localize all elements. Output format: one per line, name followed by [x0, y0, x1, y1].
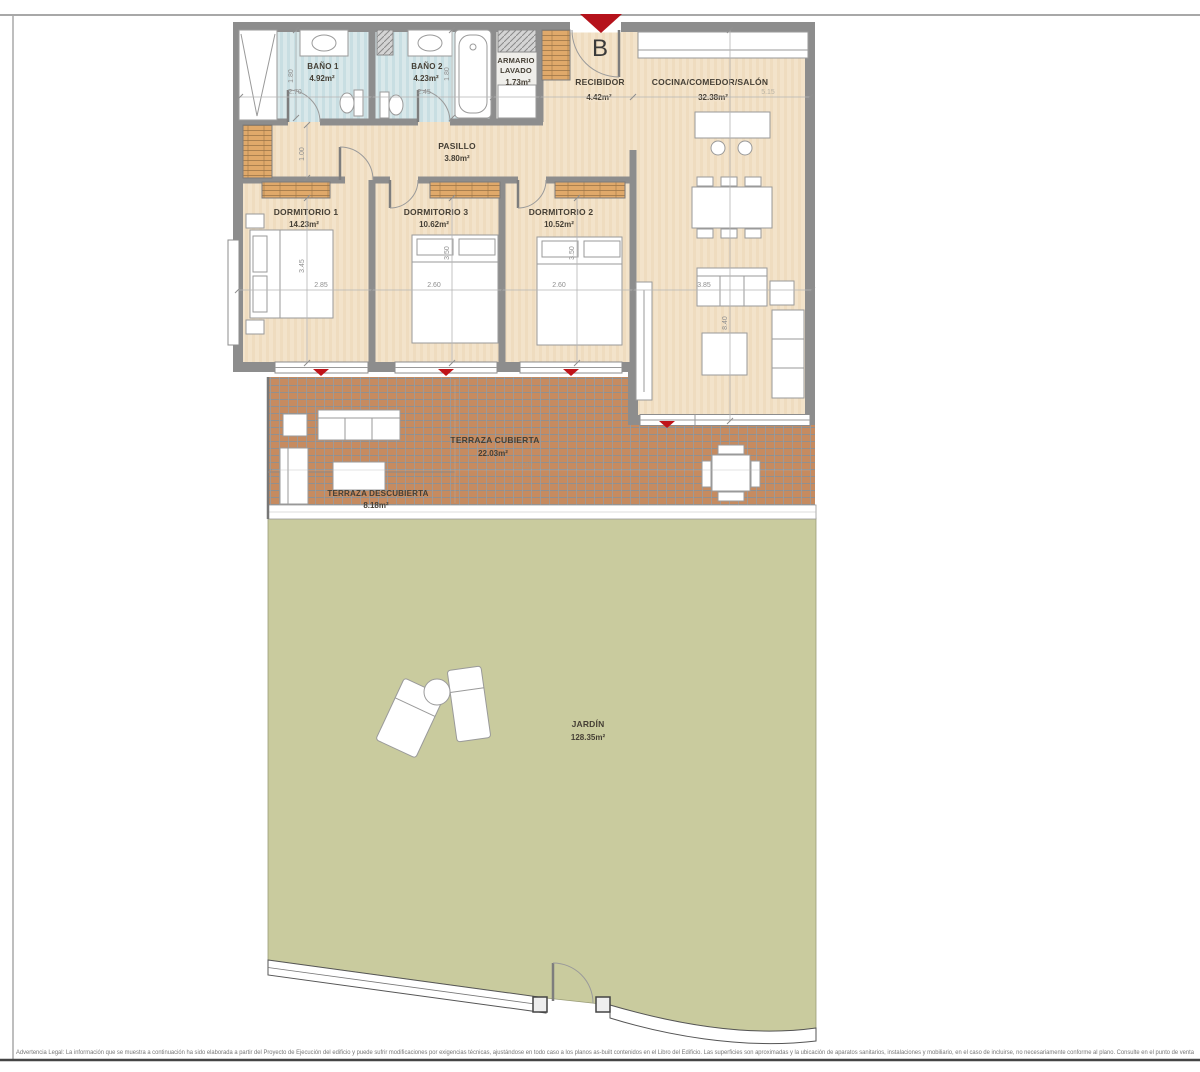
dim-bano1-h: 1.80: [288, 69, 295, 83]
armario-lavado-label-2: LAVADO: [500, 66, 532, 75]
bath1-toilet-bowl: [340, 93, 354, 113]
dorm3-pillow-2: [459, 239, 495, 255]
dorm3-area: 10.62m²: [419, 220, 449, 229]
dim-dorm1-h: 3.45: [299, 259, 306, 273]
bano1-area: 4.92m²: [309, 74, 335, 83]
dim-bano1-w: 2.70: [288, 89, 302, 96]
dining-chair-1: [697, 177, 713, 186]
dorm2-area: 10.52m²: [544, 220, 574, 229]
cocina-area: 32.38m²: [698, 93, 728, 102]
bath2-toilet-tank: [380, 92, 389, 118]
wardrobe-dorm1: [262, 182, 330, 198]
tv-bench: [772, 310, 804, 398]
dining-chair-2: [721, 177, 737, 186]
terrace-chair-bottom: [718, 492, 744, 501]
unit-marker: B: [592, 35, 608, 62]
dim-pasillo: 1.00: [299, 147, 306, 161]
garden: JARDÍN 128.35m²: [268, 518, 816, 1044]
dim-dorm3-w: 2.60: [427, 282, 441, 289]
dorm1-nightstand-bottom: [246, 320, 264, 334]
armario-lavado-area: 1.73m²: [505, 78, 531, 87]
dim-dorm1-w: 2.85: [314, 282, 328, 289]
shower-screen: [239, 30, 277, 120]
dim-bano2-w: 2.45: [417, 89, 431, 96]
bano1-label: BAÑO 1: [307, 62, 339, 71]
pasillo-label: PASILLO: [438, 141, 476, 151]
dining-table: [692, 187, 772, 228]
floor-plan-page: JARDÍN 128.35m² TERRAZA CUBIERTA 22.03m²…: [0, 0, 1200, 1072]
dim-dorm2-h: 3.50: [569, 246, 576, 260]
terrace-chair-top: [718, 445, 744, 454]
dorm2-pillow-2: [584, 241, 620, 257]
dining-chair-4: [697, 229, 713, 238]
armario-lavado-label-1: ARMARIO: [497, 56, 534, 65]
dorm1-area: 14.23m²: [289, 220, 319, 229]
gate-post-right: [596, 997, 610, 1012]
terrace-dining-table: [712, 455, 750, 491]
gate-post-left: [533, 997, 547, 1012]
terraza-cubierta-label: TERRAZA CUBIERTA: [450, 435, 539, 445]
garden-label: JARDÍN: [572, 719, 605, 729]
dim-salon-w: 3.85: [697, 282, 711, 289]
dim-terrace-w: 11.90: [516, 462, 533, 469]
terraza-descubierta-label: TERRAZA DESCUBIERTA: [327, 489, 428, 498]
bath1-basin: [312, 35, 336, 51]
bano2-area: 4.23m²: [413, 74, 439, 83]
terrace-chair-left: [702, 461, 711, 487]
laundry-cabinet: [498, 85, 536, 118]
garden-lawn: [268, 518, 816, 1031]
cocina-label: COCINA/COMEDOR/SALÓN: [652, 76, 768, 87]
dining-chair-6: [745, 229, 761, 238]
dorm1-label: DORMITORIO 1: [274, 207, 339, 217]
coffee-table: [702, 333, 747, 375]
duct-shaft: [377, 30, 393, 55]
dorm1-pillow-1: [253, 236, 267, 272]
dorm1-pillow-2: [253, 276, 267, 312]
washer: [498, 30, 536, 52]
bath2-toilet-bowl: [389, 95, 403, 115]
dorm3-label: DORMITORIO 3: [404, 207, 469, 217]
garden-area: 128.35m²: [571, 733, 606, 742]
dim-salon-h: 8.40: [722, 316, 729, 330]
dim-dorm3-h: 3.50: [444, 246, 451, 260]
bath1-toilet-tank: [354, 90, 363, 116]
island-stool-1: [711, 141, 725, 155]
terrace-sofa: [318, 410, 400, 440]
legal-disclaimer: Advertencia Legal: La información que se…: [16, 1049, 1194, 1056]
island-stool-2: [738, 141, 752, 155]
kitchen-counter: [638, 32, 808, 58]
wardrobe-dorm2: [555, 182, 625, 198]
dorm1-nightstand-top: [246, 214, 264, 228]
dim-terrace-h: 1.90: [448, 426, 454, 438]
window-dorm1-side: [228, 240, 239, 345]
floor-plan-drawing: JARDÍN 128.35m² TERRAZA CUBIERTA 22.03m²…: [0, 0, 1200, 1072]
bath2-basin: [418, 35, 442, 51]
wardrobe-dorm3: [430, 182, 500, 198]
terraza-descubierta-area: 8.18m²: [363, 501, 389, 510]
dim-dorm2-w: 2.60: [552, 282, 566, 289]
corridor-closet: [243, 125, 272, 178]
recibidor-label: RECIBIDOR: [575, 77, 625, 87]
dim-cocina-w: 5.15: [761, 89, 775, 96]
apartment: BAÑO 1 4.92m² BAÑO 2 4.23m² ARMARIO LAVA…: [228, 22, 810, 426]
recibidor-area: 4.42m²: [586, 93, 612, 102]
pasillo-area: 3.80m²: [444, 154, 470, 163]
terrace-coffee-table: [333, 462, 385, 490]
terrace-chair-right: [751, 461, 760, 487]
hall-closet: [542, 30, 570, 80]
dim-bano2-h: 1.80: [444, 67, 451, 81]
terraza-cubierta-area: 22.03m²: [478, 449, 508, 458]
terrace-side-table: [283, 414, 307, 436]
kitchen-island: [695, 112, 770, 138]
dining-chair-3: [745, 177, 761, 186]
side-table: [770, 281, 794, 305]
bano2-label: BAÑO 2: [411, 62, 443, 71]
dorm2-label: DORMITORIO 2: [529, 207, 594, 217]
dining-chair-5: [721, 229, 737, 238]
garden-side-table: [424, 679, 450, 705]
bathtub: [455, 30, 491, 118]
terrace-armchair: [280, 448, 308, 504]
